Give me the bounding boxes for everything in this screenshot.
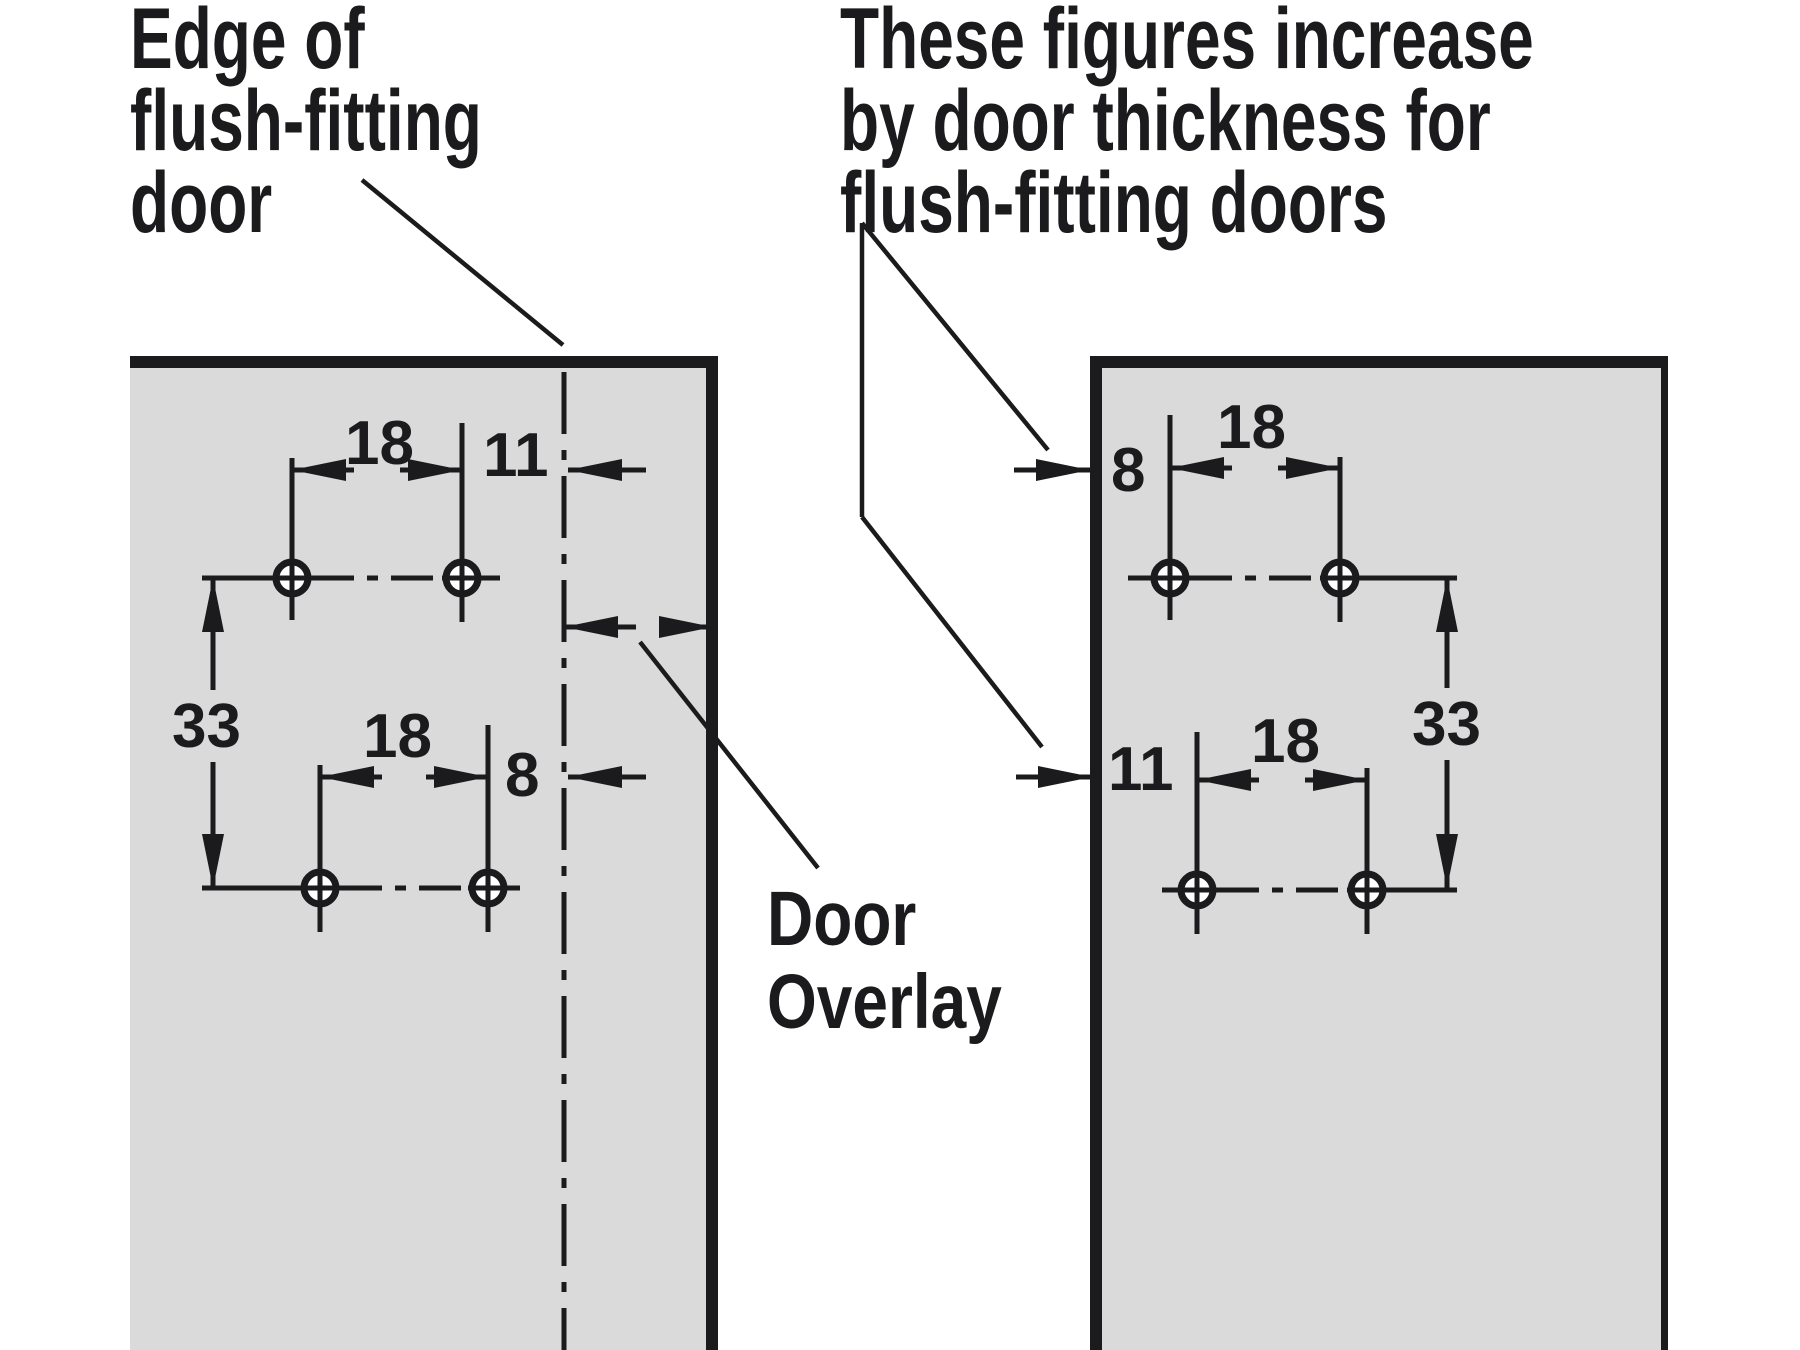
edge-of-flush-door-label: Edge of flush-fitting door: [130, 0, 482, 244]
door-overlay-line: Overlay: [767, 961, 1002, 1044]
left-panel-top-edge: [130, 356, 717, 368]
door-overlay-line: Door: [767, 878, 1002, 961]
door-overlay-label: Door Overlay: [767, 878, 1002, 1044]
dim-left-hole-spacing-bottom: 18: [363, 706, 432, 768]
right-panel-right-edge: [1661, 361, 1668, 1350]
hinge-drilling-diagram: Edge of flush-fitting door These figures…: [0, 0, 1800, 1350]
right-door-panel: [1095, 361, 1667, 1350]
door-thickness-note: These figures increase by door thickness…: [840, 0, 1534, 244]
dim-left-row-spacing: 33: [172, 696, 241, 758]
dim-left-overlay-offset-bottom: 8: [505, 745, 539, 807]
left-door-panel-drawing: [130, 356, 718, 1350]
edge-label-line: flush-fitting: [130, 80, 482, 162]
edge-label-line: door: [130, 162, 482, 244]
thickness-note-line: These figures increase: [840, 0, 1534, 80]
leader-line: [862, 223, 1048, 450]
dim-right-edge-offset-bottom: 11: [1108, 739, 1174, 801]
leader-line: [862, 517, 1042, 747]
left-panel-right-edge: [706, 356, 718, 1350]
right-panel-top-edge: [1090, 356, 1668, 368]
thickness-note-line: by door thickness for: [840, 80, 1534, 162]
left-door-panel: [130, 361, 717, 1350]
right-door-panel-drawing: [1090, 356, 1668, 1350]
thickness-note-line: flush-fitting doors: [840, 162, 1534, 244]
edge-label-line: Edge of: [130, 0, 482, 80]
dim-right-hole-spacing-top: 18: [1217, 397, 1286, 459]
dim-left-hole-spacing-top: 18: [345, 413, 414, 475]
dim-right-hole-spacing-bottom: 18: [1251, 711, 1320, 773]
dim-right-edge-offset-top: 8: [1111, 440, 1145, 502]
dim-left-overlay-offset-top: 11: [483, 425, 549, 487]
dim-right-row-spacing: 33: [1412, 694, 1481, 756]
right-panel-left-edge: [1090, 356, 1102, 1350]
